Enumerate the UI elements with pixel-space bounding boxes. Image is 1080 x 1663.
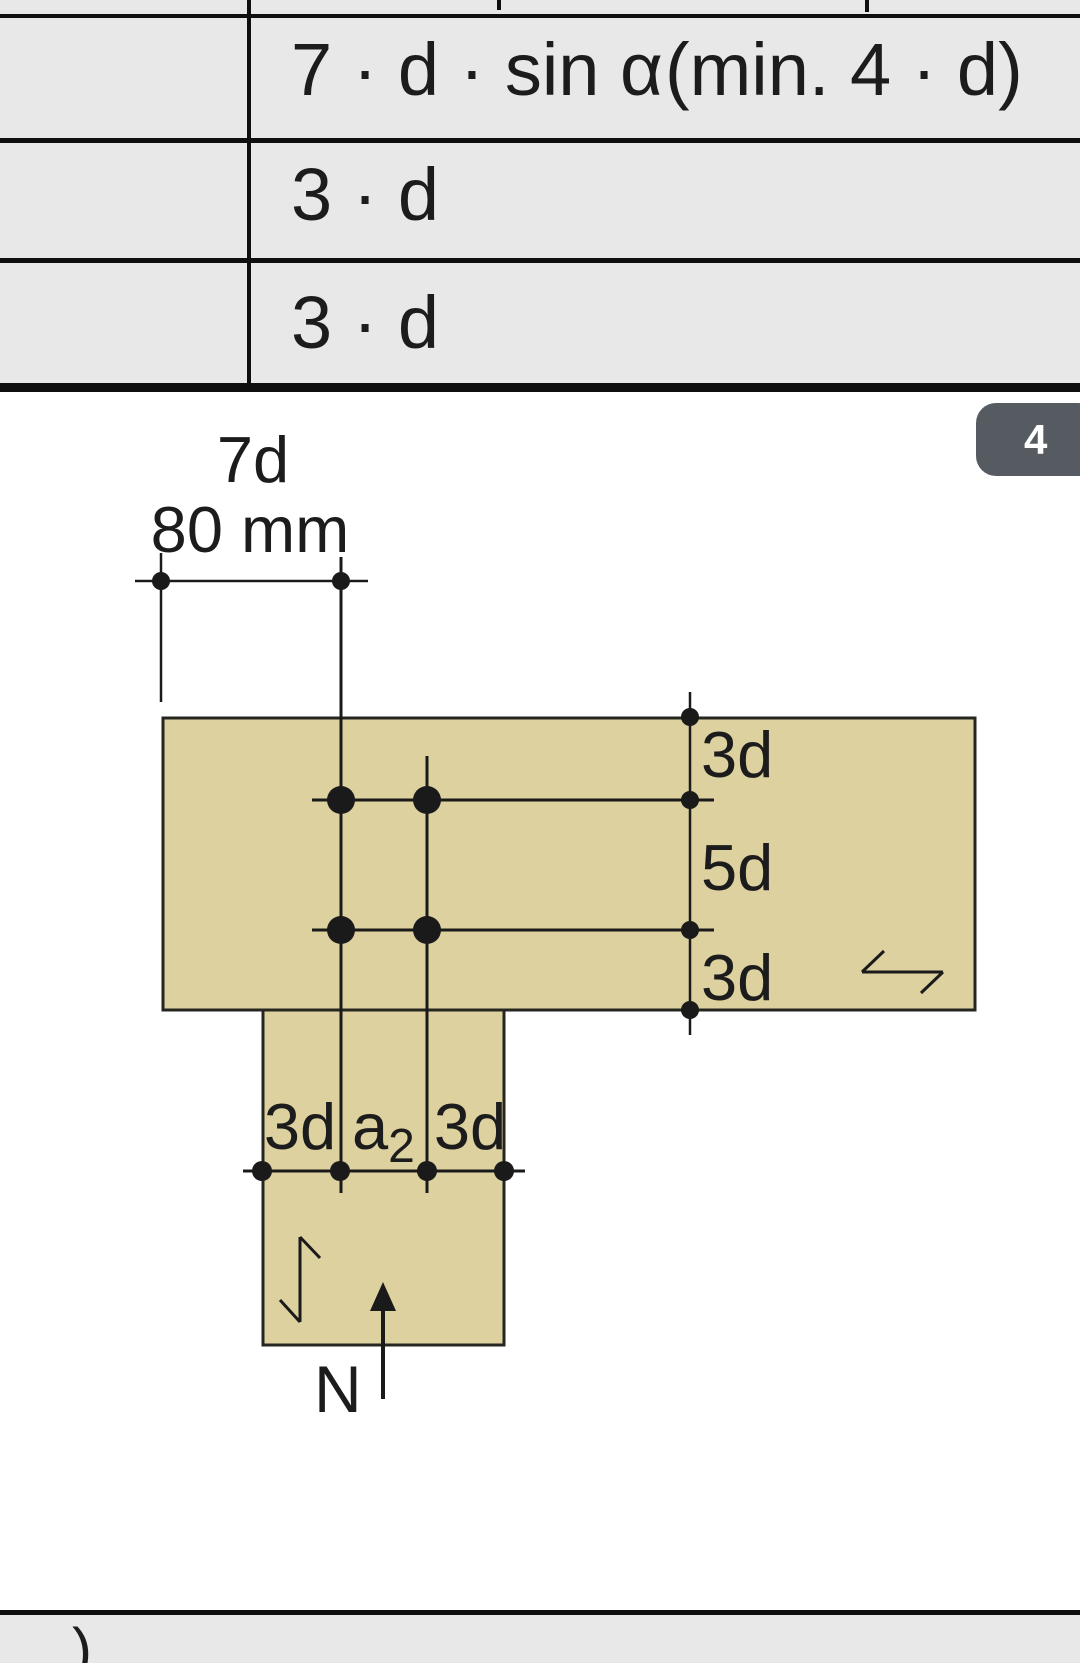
footer-strip: [0, 1615, 1080, 1663]
dimension-dot: [681, 708, 699, 726]
fastener-dot: [413, 916, 441, 944]
dimension-dot: [252, 1161, 272, 1181]
fastener-dot: [327, 786, 355, 814]
row-spacing-label: 5d: [701, 835, 773, 900]
footer-cut-text: ): [72, 1620, 92, 1663]
dimension-dot: [681, 791, 699, 809]
timber-connection-drawing: [0, 0, 1080, 1663]
dimension-dot: [494, 1161, 514, 1181]
edge-distance-label-bottom: 3d: [701, 945, 773, 1010]
dimension-dot: [681, 921, 699, 939]
document-page: 7 · d · sin α (min. 4 · d) 3 · d 3 · d 4: [0, 0, 1080, 1663]
post-spacing-a2: a2: [352, 1094, 415, 1171]
dimension-dot: [681, 1001, 699, 1019]
force-label-N: N: [314, 1356, 362, 1422]
fastener-dot: [327, 916, 355, 944]
post-edge-distance-left: 3d: [258, 1094, 342, 1159]
dimension-dot: [152, 572, 170, 590]
dimension-dot: [330, 1161, 350, 1181]
post-edge-distance-right: 3d: [428, 1094, 512, 1159]
horizontal-beam: [163, 718, 975, 1010]
fastener-dot: [413, 786, 441, 814]
top-dimension-label-7d: 7d: [163, 427, 343, 492]
a2-base: a: [352, 1090, 388, 1163]
a2-subscript: 2: [388, 1120, 415, 1173]
edge-distance-label-top: 3d: [701, 722, 773, 787]
dimension-dot: [417, 1161, 437, 1181]
top-dimension-label-80mm: 80 mm: [115, 497, 385, 562]
